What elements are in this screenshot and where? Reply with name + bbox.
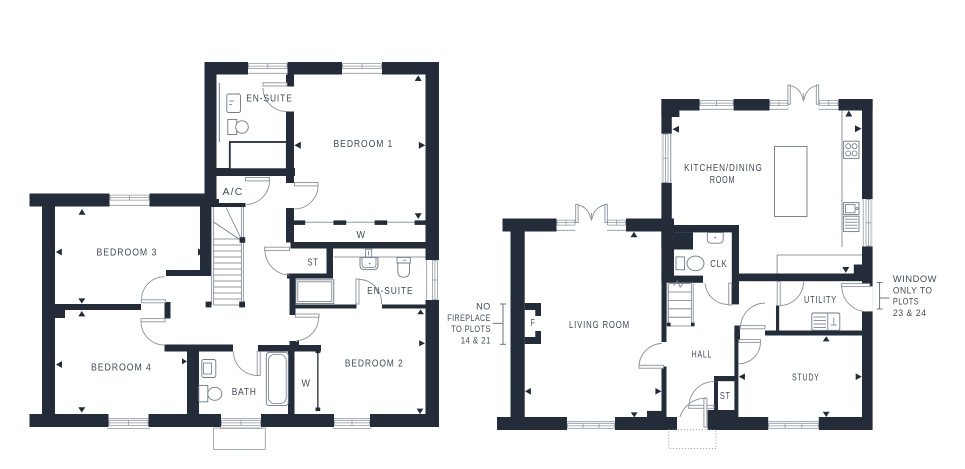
svg-text:EN-SUITE: EN-SUITE (367, 286, 413, 297)
svg-text:BEDROOM 1: BEDROOM 1 (334, 139, 394, 150)
svg-text:TO PLOTS: TO PLOTS (451, 324, 491, 334)
svg-text:F: F (531, 318, 536, 329)
svg-text:BEDROOM 4: BEDROOM 4 (91, 363, 152, 374)
svg-text:CLK: CLK (710, 259, 727, 270)
svg-text:UTILITY: UTILITY (804, 295, 837, 306)
svg-text:STUDY: STUDY (792, 373, 820, 384)
svg-text:KITCHEN/DINING: KITCHEN/DINING (684, 163, 763, 174)
svg-text:14 & 21: 14 & 21 (461, 335, 491, 345)
svg-text:BEDROOM 3: BEDROOM 3 (97, 248, 158, 259)
svg-text:BEDROOM 2: BEDROOM 2 (345, 358, 404, 369)
svg-text:WINDOW: WINDOW (893, 274, 937, 284)
svg-text:ST: ST (308, 258, 319, 269)
svg-text:FIREPLACE: FIREPLACE (447, 313, 491, 323)
svg-text:BATH: BATH (232, 387, 257, 398)
svg-text:PLOTS: PLOTS (893, 297, 919, 307)
svg-text:EN-SUITE: EN-SUITE (246, 94, 292, 105)
svg-text:NO: NO (476, 302, 491, 312)
svg-text:W: W (356, 230, 366, 241)
svg-text:A/C: A/C (223, 187, 244, 198)
svg-text:LIVING ROOM: LIVING ROOM (569, 320, 630, 331)
svg-text:W: W (302, 379, 312, 390)
svg-text:ST: ST (720, 391, 731, 402)
svg-text:ROOM: ROOM (710, 175, 736, 186)
svg-text:23 & 24: 23 & 24 (893, 308, 927, 318)
svg-text:HALL: HALL (692, 350, 713, 361)
svg-text:ONLY TO: ONLY TO (893, 285, 933, 295)
